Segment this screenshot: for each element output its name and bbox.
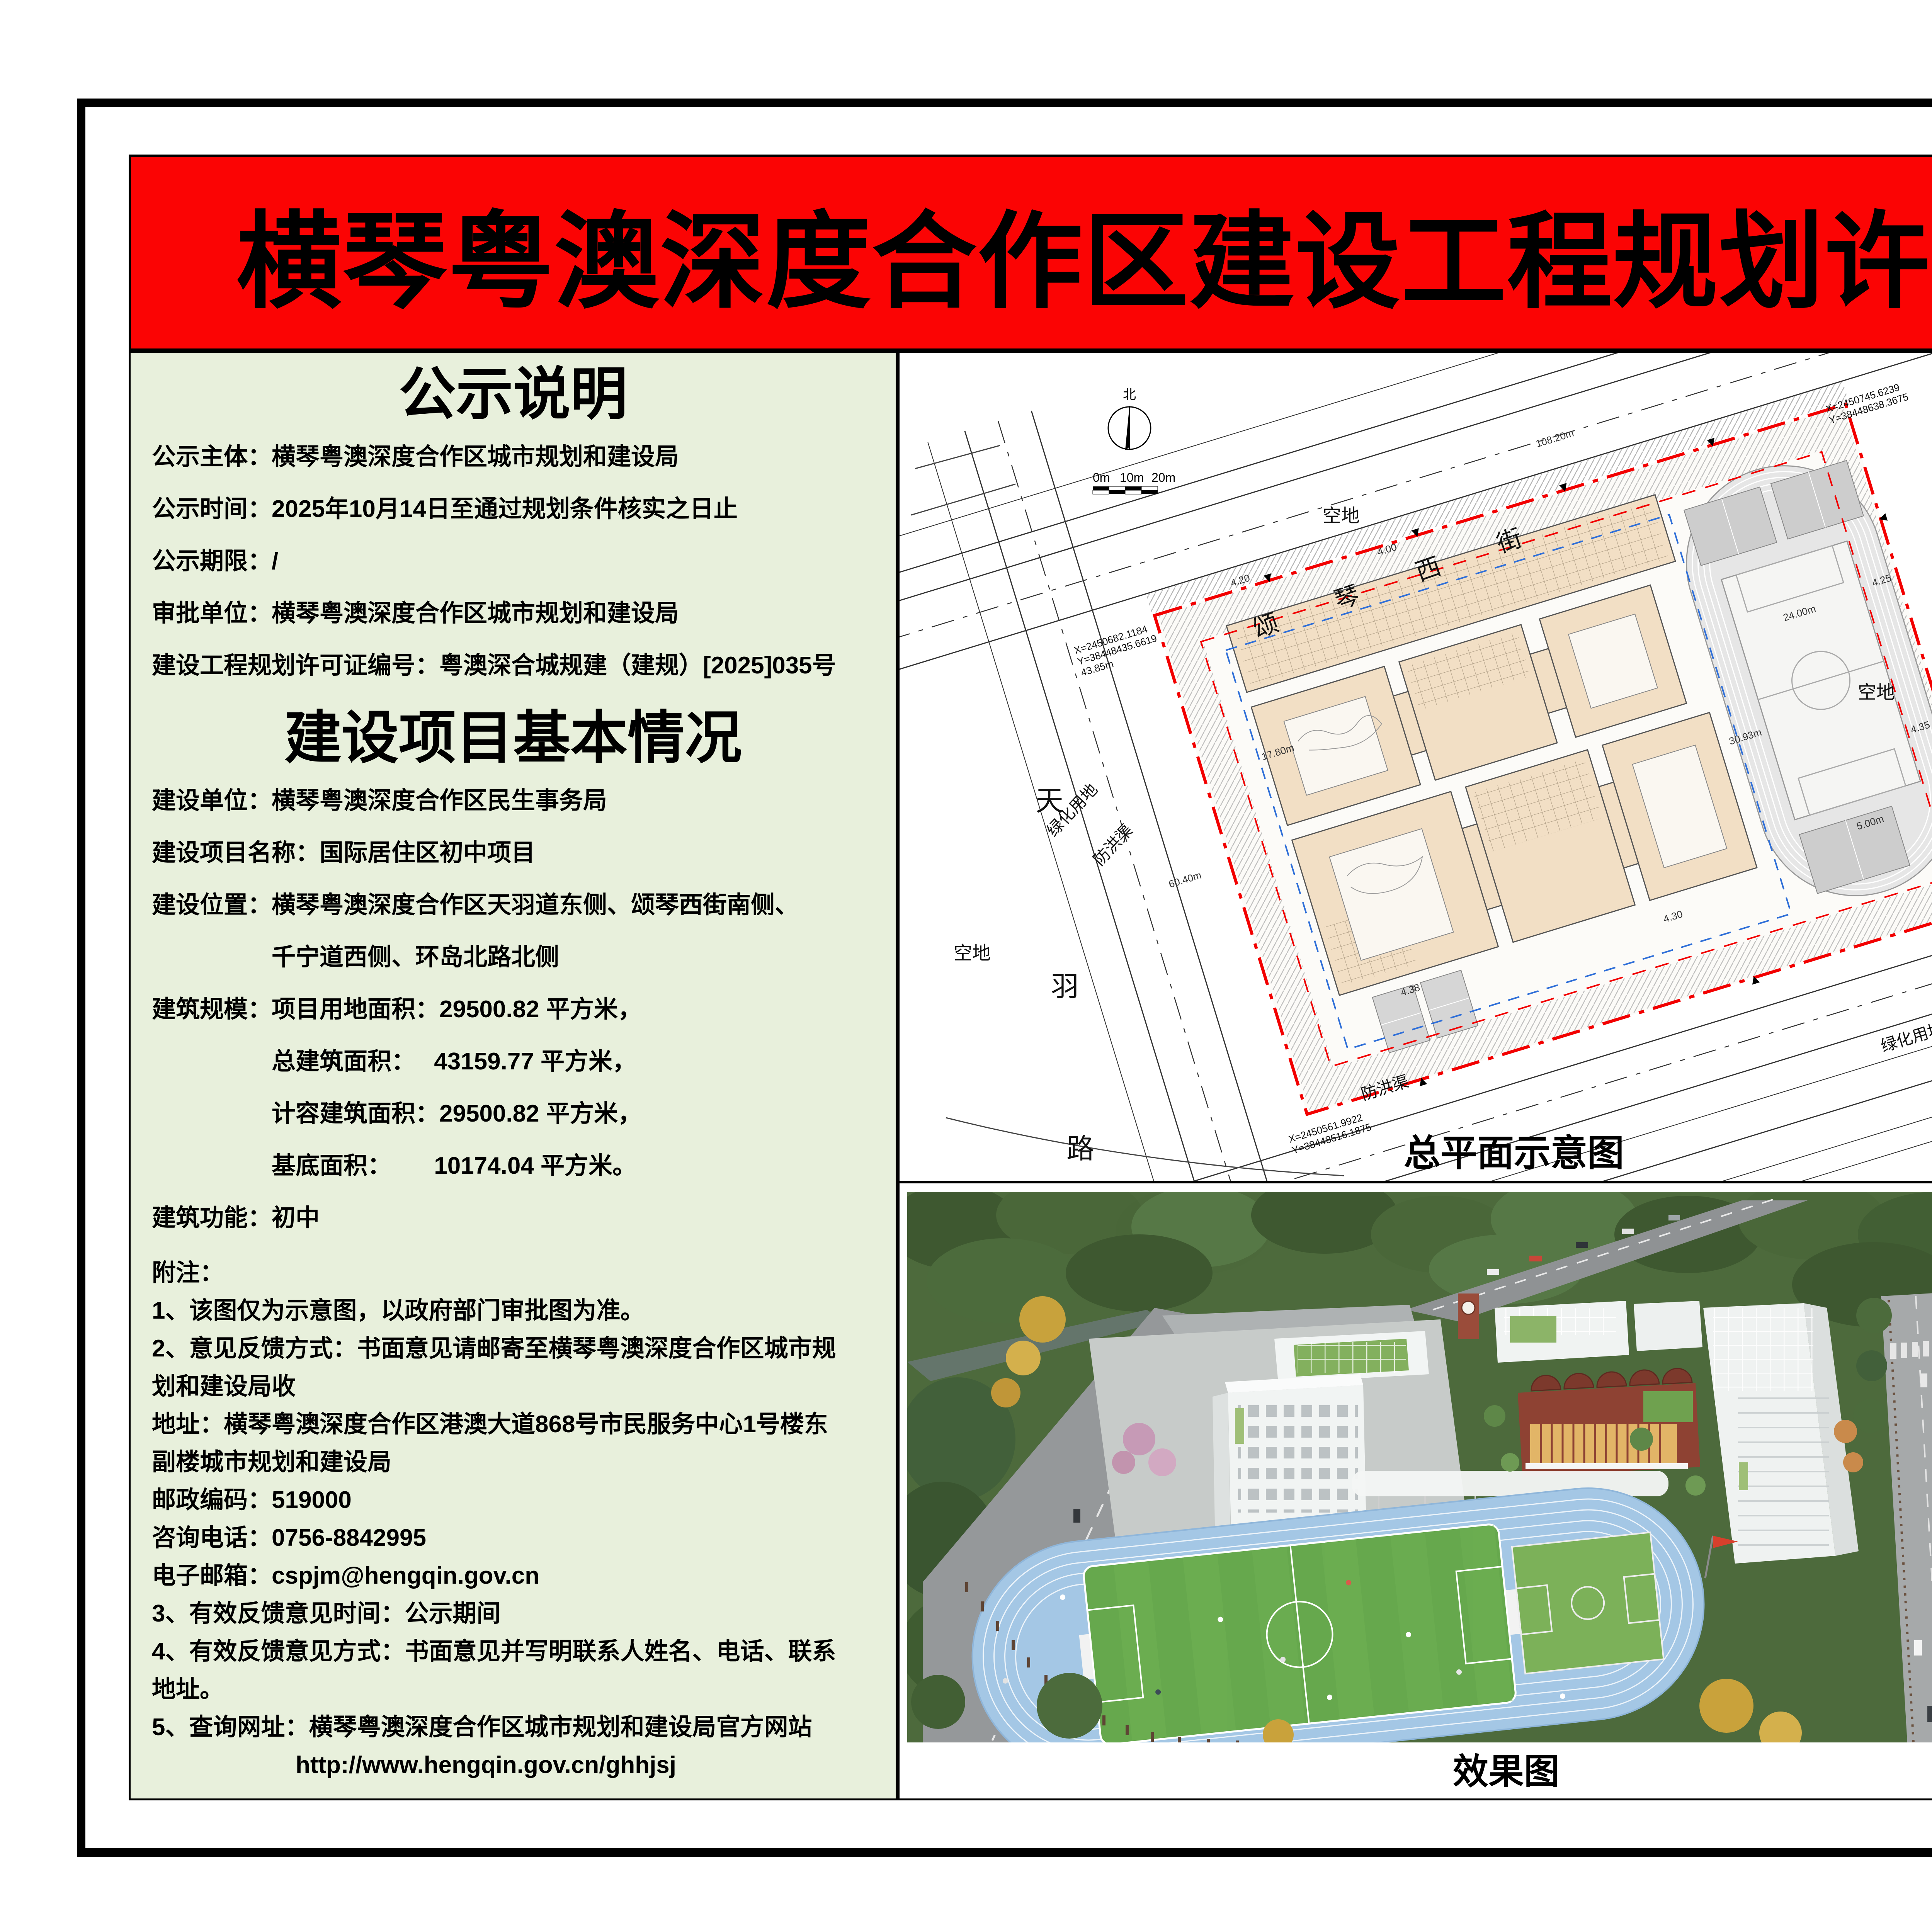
note-line: 2、意见反馈方式：书面意见请邮寄至横琴粤澳深度合作区城市规 [152, 1330, 874, 1368]
project-line: 计容建筑面积：29500.82 平方米， [152, 1088, 874, 1140]
svg-text:绿化用地: 绿化用地 [1879, 1019, 1932, 1056]
note-line: 3、有效反馈意见时间：公示期间 [152, 1595, 874, 1633]
project-line: 建设位置：横琴粤澳深度合作区天羽道东侧、颂琴西街南侧、 [152, 879, 874, 931]
note-line: 地址。 [152, 1671, 874, 1708]
notice-poster: 横琴粤澳深度合作区建设工程规划许可批后公告 公示说明 公示主体：横琴粤澳深度合作… [0, 0, 1932, 1919]
rendering-image [907, 1192, 1932, 1742]
note-line: 地址：横琴粤澳深度合作区港澳大道868号市民服务中心1号楼东 [152, 1406, 874, 1443]
svg-text:空地: 空地 [1858, 682, 1895, 703]
notice-line: 公示期限：/ [152, 535, 874, 587]
rendering-area: 效果图 [900, 1183, 1932, 1798]
north-arrow-icon: 北 [1108, 388, 1151, 450]
site-plan-drawing: 北 0m 10m 20m 空地 空地 空地 颂 [900, 353, 1932, 1183]
project-line: 建筑规模：项目用地面积：29500.82 平方米， [152, 983, 874, 1035]
notice-line: 公示时间：2025年10月14日至通过规划条件核实之日止 [152, 483, 874, 535]
note-line: 划和建设局收 [152, 1368, 874, 1406]
project-line: 总建筑面积： 43159.77 平方米， [152, 1035, 874, 1088]
title-banner: 横琴粤澳深度合作区建设工程规划许可批后公告 [129, 155, 1932, 351]
note-line: 电子邮箱：cspjm@hengqin.gov.cn [152, 1557, 874, 1595]
svg-text:羽: 羽 [1051, 971, 1079, 1002]
basketball-court-render [1512, 1532, 1664, 1674]
notice-line: 审批单位：横琴粤澳深度合作区城市规划和建设局 [152, 587, 874, 639]
scale-bar: 0m 10m 20m [1093, 471, 1175, 494]
site-plan-caption: 总平面示意图 [1340, 1124, 1688, 1176]
svg-text:20m: 20m [1151, 471, 1175, 484]
svg-text:0m: 0m [1093, 471, 1110, 484]
note-line: 副楼城市规划和建设局 [152, 1443, 874, 1481]
svg-text:防洪渠: 防洪渠 [1090, 821, 1136, 869]
note-line: http://www.hengqin.gov.cn/ghhjsj [152, 1746, 874, 1784]
project-heading: 建设项目基本情况 [152, 706, 874, 770]
note-line: 附注： [152, 1254, 874, 1292]
project-line: 基底面积： 10174.04 平方米。 [152, 1140, 874, 1192]
svg-text:108.20m: 108.20m [1534, 427, 1575, 449]
svg-text:空地: 空地 [954, 943, 991, 964]
svg-text:路: 路 [1066, 1134, 1094, 1164]
note-line: 4、有效反馈意见方式：书面意见并写明联系人姓名、电话、联系 [152, 1633, 874, 1671]
notes-section: 附注： 1、该图仅为示意图，以政府部门审批图为准。 2、意见反馈方式：书面意见请… [152, 1254, 874, 1784]
drawings-panel: 北 0m 10m 20m 空地 空地 空地 颂 [898, 351, 1932, 1800]
project-line: 建筑功能：初中 [152, 1192, 874, 1244]
svg-text:X=2450682.1184 Y=3: X=2450682.1184 Y=38448435.6619 43.85m [1073, 620, 1164, 679]
project-line: 建设单位：横琴粤澳深度合作区民生事务局 [152, 775, 874, 827]
page-title: 横琴粤澳深度合作区建设工程规划许可批后公告 [236, 177, 1932, 329]
note-line: 邮政编码：519000 [152, 1481, 874, 1519]
svg-text:北: 北 [1123, 388, 1136, 402]
info-panel: 公示说明 公示主体：横琴粤澳深度合作区城市规划和建设局 公示时间：2025年10… [129, 351, 898, 1800]
plan-roads-and-site [900, 353, 1932, 1183]
svg-text:空地: 空地 [1323, 506, 1360, 526]
site-plan-area: 北 0m 10m 20m 空地 空地 空地 颂 [900, 353, 1932, 1183]
project-line: 千宁道西侧、环岛北路北侧 [152, 931, 874, 983]
note-line: 1、该图仅为示意图，以政府部门审批图为准。 [152, 1292, 874, 1330]
notice-line: 公示主体：横琴粤澳深度合作区城市规划和建设局 [152, 431, 874, 483]
notice-heading: 公示说明 [152, 362, 874, 426]
project-line: 建设项目名称：国际居住区初中项目 [152, 827, 874, 879]
notice-line: 建设工程规划许可证编号：粤澳深合城规建（建规）[2025]035号 [152, 639, 874, 692]
note-line: 咨询电话：0756-8842995 [152, 1519, 874, 1557]
svg-text:10m: 10m [1120, 471, 1144, 484]
note-line: 5、查询网址：横琴粤澳深度合作区城市规划和建设局官方网站 [152, 1708, 874, 1746]
rendering-caption: 效果图 [1332, 1743, 1680, 1794]
